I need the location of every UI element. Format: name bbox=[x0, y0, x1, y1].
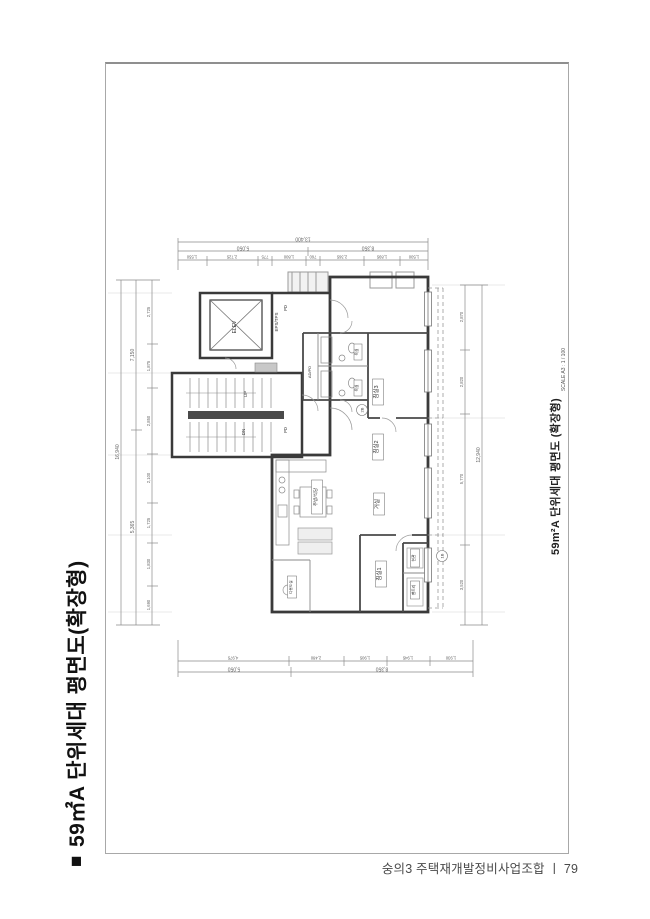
dim-bottom-seg-3: 1,905 bbox=[359, 656, 370, 661]
sofa bbox=[298, 528, 332, 554]
ad-pd-label: AD/PD bbox=[307, 366, 312, 378]
floor-plan-drawing: 13,400 5,050 8,350 1,550 2,725 775 1,800… bbox=[85, 232, 535, 687]
dimension-text-left: 16,940 7,150 5,365 2,725 1,875 2,850 2,1… bbox=[115, 306, 151, 610]
dimension-text-top: 13,400 5,050 8,350 1,550 2,725 775 1,800… bbox=[186, 236, 419, 260]
dimension-text-right: 2,870 2,820 5,770 3,520 12,940 bbox=[459, 311, 482, 590]
elevator-label: ELEV bbox=[232, 320, 238, 333]
circle-tags: 2B 1B bbox=[357, 405, 448, 562]
dim-bottom-group-1: 5,050 bbox=[228, 666, 241, 672]
thin-partitions bbox=[272, 333, 428, 612]
bath-fixtures bbox=[321, 337, 356, 397]
room-label-bath2: 욕실 bbox=[354, 384, 359, 391]
dim-top-seg-1: 1,550 bbox=[186, 255, 197, 260]
dim-bottom-seg-4: 1,945 bbox=[402, 656, 413, 661]
circle-tag-1: 2B bbox=[360, 407, 365, 412]
adjacent-unit-fragment bbox=[288, 272, 414, 292]
dim-left-seg-3: 2,850 bbox=[146, 415, 151, 426]
interior-walls bbox=[303, 333, 428, 612]
dim-left-group-2: 5,365 bbox=[130, 521, 136, 534]
dim-top-seg-8: 1,500 bbox=[408, 255, 419, 260]
dim-top-seg-4: 1,800 bbox=[283, 255, 294, 260]
stair-up-label: UP bbox=[243, 391, 248, 397]
dim-right-seg-1: 2,870 bbox=[459, 311, 464, 322]
dim-top-seg-3: 775 bbox=[261, 255, 269, 260]
room-label-pantry: 팬트리 bbox=[411, 585, 416, 595]
dim-right-seg-4: 3,520 bbox=[459, 579, 464, 590]
pd-bottom-label: PD bbox=[283, 427, 288, 433]
circle-tag-2: 1B bbox=[440, 553, 445, 558]
dim-top-group-2: 8,350 bbox=[362, 245, 375, 251]
dim-left-seg-1: 2,725 bbox=[146, 306, 151, 317]
caption-scale: SCALE A3 : 1 / 100 bbox=[561, 348, 570, 391]
dim-top-group-1: 5,050 bbox=[237, 245, 250, 251]
eps-tps-label: EPS/TPS bbox=[274, 312, 279, 331]
dim-bottom-seg-2: 2,480 bbox=[310, 656, 321, 661]
room-label-entrance: 현관 bbox=[411, 554, 416, 561]
dim-left-seg-7: 1,690 bbox=[146, 599, 151, 610]
footer-page-number: 79 bbox=[564, 862, 578, 876]
dim-bottom-group-2: 8,350 bbox=[376, 666, 389, 672]
dimension-text-bottom: 4,975 2,480 1,905 1,945 1,930 5,050 8,35… bbox=[227, 656, 456, 672]
room-label-bedroom1: 침실1 bbox=[375, 567, 383, 580]
dim-left-seg-6: 1,830 bbox=[146, 558, 151, 569]
drawing-caption: 1 A3 59m²A 단위세대 평면도 (확장형) SCALE A3 : 1 /… bbox=[540, 348, 570, 562]
footer-organization: 숭의3 주택재개발정비사업조합 bbox=[382, 862, 545, 876]
room-label-kitchen: 주방/식당 bbox=[312, 487, 319, 506]
dim-top-seg-5: 760 bbox=[309, 255, 317, 260]
dim-top-seg-7: 1,895 bbox=[376, 255, 387, 260]
room-label-utility: 다용도실 bbox=[288, 580, 293, 593]
dim-top-seg-2: 2,725 bbox=[226, 255, 237, 260]
stair-handrail bbox=[188, 411, 284, 419]
dim-left-group-1: 7,150 bbox=[130, 349, 136, 362]
dim-right-seg-3: 5,770 bbox=[459, 473, 464, 484]
room-label-bedroom2: 침실2 bbox=[372, 440, 380, 453]
page-footer: 숭의3 주택재개발정비사업조합 ㅣ 79 bbox=[330, 858, 630, 877]
grid-extension-lines bbox=[108, 285, 505, 612]
room-label-bath1: 욕실 bbox=[354, 348, 359, 355]
dim-left-seg-2: 1,875 bbox=[146, 360, 151, 371]
hall-hatch-box bbox=[255, 363, 277, 372]
dim-left-total: 16,940 bbox=[115, 444, 121, 460]
stair-down-label: DN bbox=[241, 429, 246, 436]
dim-left-seg-4: 2,100 bbox=[146, 472, 151, 483]
dim-bottom-seg-5: 1,930 bbox=[445, 656, 456, 661]
pd-top-label: PD bbox=[283, 305, 288, 311]
dim-right-total: 12,940 bbox=[476, 447, 482, 463]
room-label-bedroom3: 침실3 bbox=[372, 385, 380, 398]
footer-separator: ㅣ bbox=[548, 862, 560, 876]
room-label-living: 거실 bbox=[373, 499, 381, 509]
dim-bottom-seg-1: 4,975 bbox=[227, 656, 238, 661]
dim-top-seg-6: 2,365 bbox=[336, 255, 347, 260]
dim-top-total: 13,400 bbox=[295, 236, 311, 242]
caption-title: 59m²A 단위세대 평면도 (확장형) bbox=[547, 398, 563, 555]
dim-left-seg-5: 1,725 bbox=[146, 517, 151, 528]
room-label-boxes bbox=[288, 344, 420, 599]
dim-right-seg-2: 2,820 bbox=[459, 376, 464, 387]
title-square-marker: ■ bbox=[67, 855, 86, 867]
